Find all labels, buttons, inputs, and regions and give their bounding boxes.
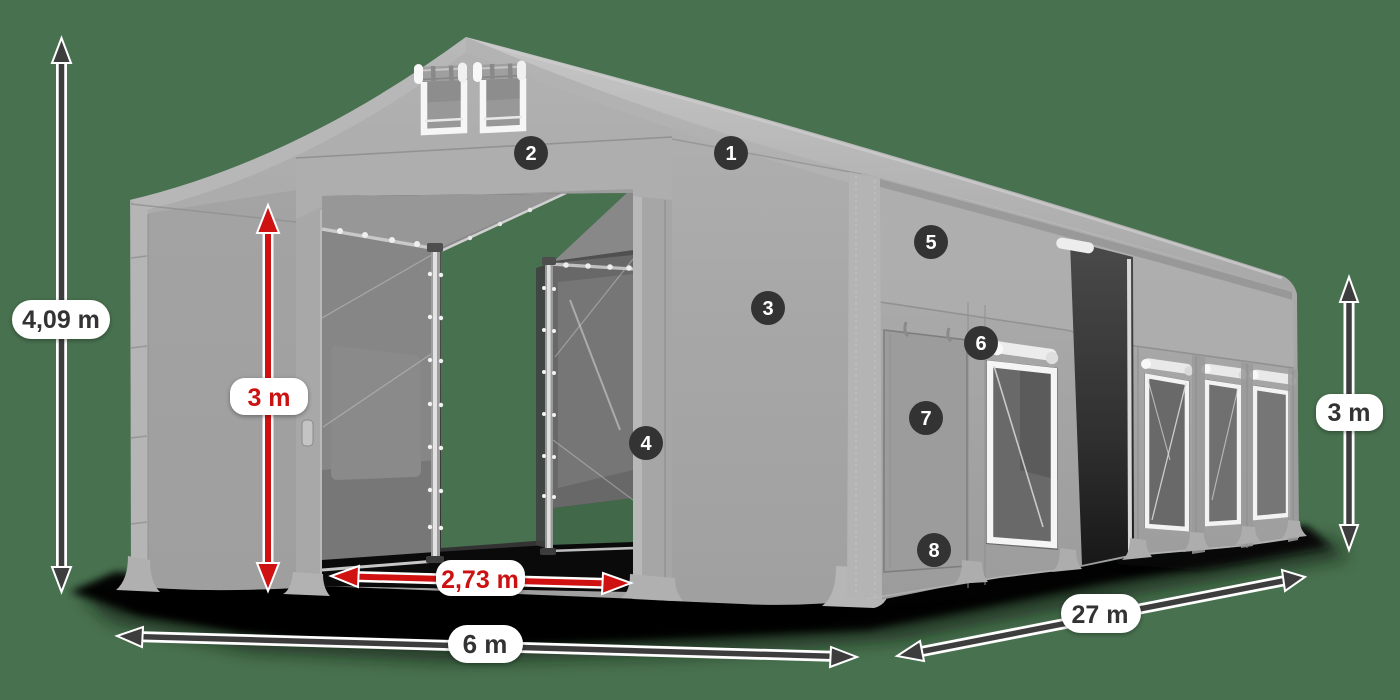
svg-text:4,09 m: 4,09 m	[22, 306, 100, 334]
svg-text:3: 3	[762, 298, 773, 320]
svg-text:2,73 m: 2,73 m	[441, 566, 519, 594]
svg-text:1: 1	[725, 143, 736, 165]
svg-text:3 m: 3 m	[1327, 399, 1370, 427]
svg-text:27 m: 27 m	[1072, 601, 1129, 629]
svg-text:5: 5	[925, 232, 936, 254]
svg-text:8: 8	[928, 540, 939, 562]
svg-text:2: 2	[525, 143, 536, 165]
svg-text:6 m: 6 m	[463, 629, 508, 659]
svg-text:3 m: 3 m	[247, 384, 290, 412]
svg-text:4: 4	[640, 433, 652, 455]
svg-text:6: 6	[975, 333, 986, 355]
svg-text:7: 7	[920, 408, 931, 430]
